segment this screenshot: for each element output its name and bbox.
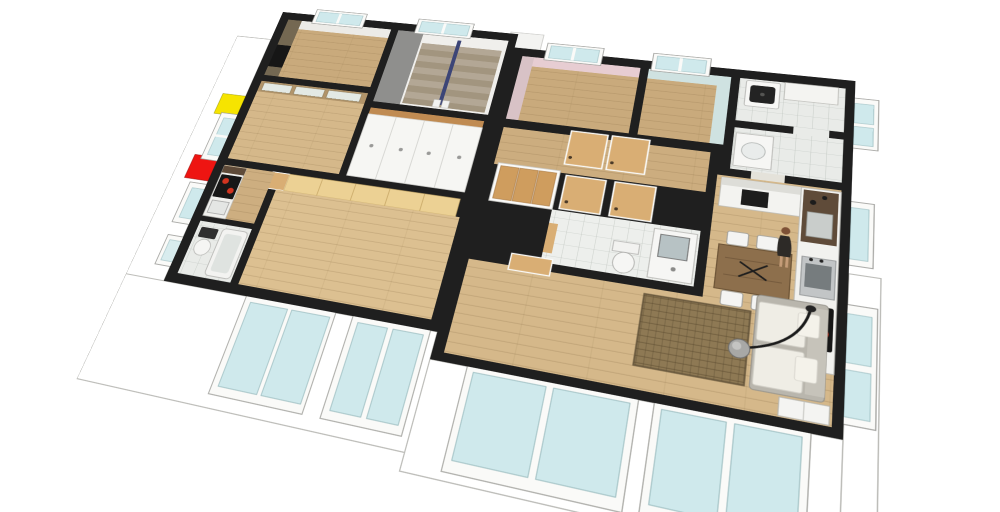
dining-chair xyxy=(756,235,779,251)
plan-svg xyxy=(56,0,952,512)
plan-projection xyxy=(56,0,952,512)
oven-door xyxy=(804,263,832,291)
dining-chair xyxy=(726,231,748,247)
dining-chair xyxy=(720,290,743,308)
door-bath-2 xyxy=(609,182,656,222)
kitchen-sink xyxy=(806,212,833,240)
vanity-mirror xyxy=(658,234,690,261)
floor-texture xyxy=(637,78,716,143)
door-bedroom-blue xyxy=(606,136,650,175)
sofa-pillow xyxy=(794,356,817,384)
sofa xyxy=(749,295,829,403)
bedroom-blue xyxy=(637,53,733,145)
door-bath-1 xyxy=(559,175,606,214)
floor-plan-render xyxy=(0,0,1000,512)
door-bedroom-pink xyxy=(564,131,608,169)
